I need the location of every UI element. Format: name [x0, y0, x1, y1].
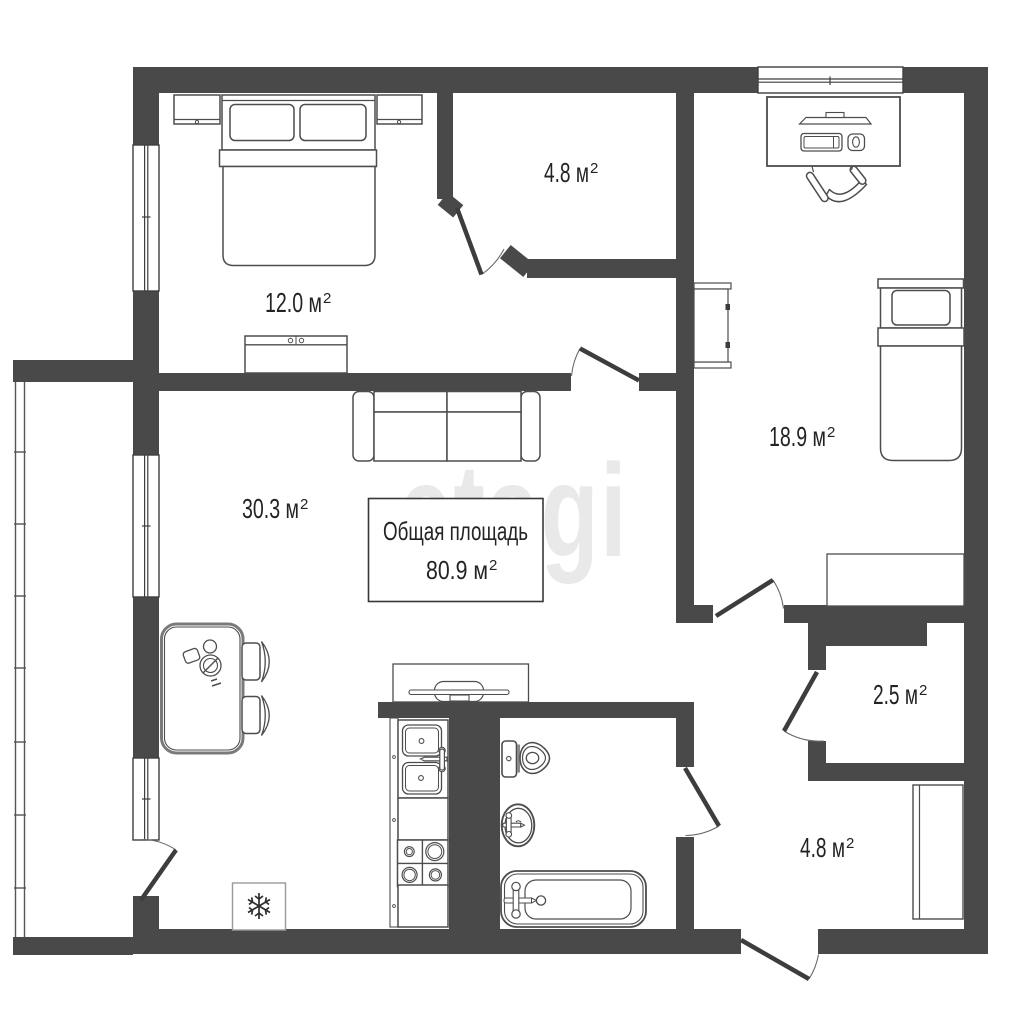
- svg-text:2: 2: [590, 160, 598, 177]
- svg-text:2: 2: [300, 496, 308, 513]
- svg-text:4.8 м: 4.8 м: [800, 832, 845, 863]
- svg-text:2: 2: [489, 557, 497, 574]
- svg-text:2.5 м: 2.5 м: [873, 679, 918, 710]
- svg-text:12.0 м: 12.0 м: [265, 287, 322, 318]
- svg-text:Общая площадь: Общая площадь: [383, 516, 528, 546]
- svg-text:2: 2: [846, 835, 854, 852]
- svg-text:30.3 м: 30.3 м: [242, 493, 299, 524]
- svg-text:18.9 м: 18.9 м: [769, 421, 826, 452]
- svg-text:80.9 м: 80.9 м: [426, 555, 488, 585]
- svg-text:2: 2: [323, 290, 331, 307]
- svg-text:4.8 м: 4.8 м: [544, 157, 589, 188]
- svg-text:2: 2: [919, 682, 927, 699]
- svg-text:2: 2: [827, 424, 835, 441]
